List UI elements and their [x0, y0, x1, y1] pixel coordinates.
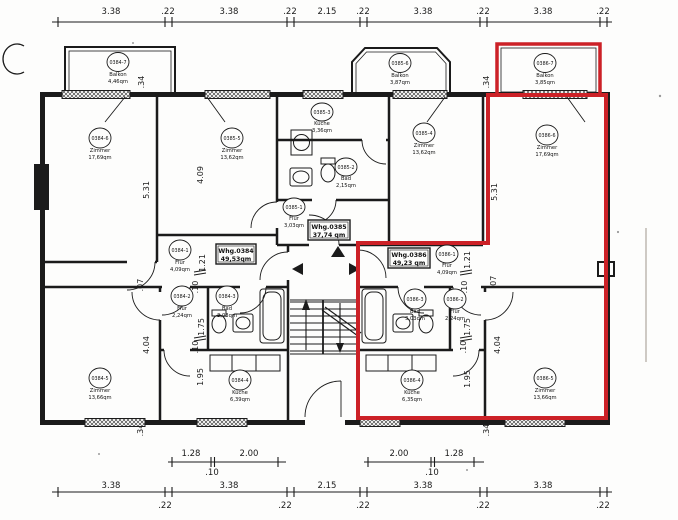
dim-label: .22 — [596, 501, 610, 511]
apartment-area: 49,53qm — [221, 256, 251, 263]
dim-label: 2.15 — [318, 481, 337, 491]
staircase — [290, 299, 361, 354]
room-label-0384-5: 0384-5 Zimmer 13,66qm — [88, 368, 111, 401]
apartment-area: 49,23 qm — [393, 260, 426, 267]
apartment-label-0384: Whg.0384 49,53qm — [216, 244, 256, 264]
room-number: 0386-6 — [539, 133, 556, 139]
room-area: 3,85qm — [535, 80, 555, 86]
dim-label: 3.38 — [534, 481, 553, 491]
room-type: Flur — [442, 263, 453, 269]
room-number: 0385-3 — [314, 110, 331, 116]
dim-label: .22 — [356, 501, 370, 511]
dim-label: 3.38 — [534, 7, 553, 17]
room-type: Zimmer — [90, 148, 111, 154]
room-number: 0386-2 — [447, 297, 464, 303]
room-number: 0385-6 — [392, 61, 409, 67]
room-number: 0384-4 — [232, 378, 249, 384]
dim-label: .22 — [476, 501, 490, 511]
dim-label: .34 — [482, 76, 491, 89]
room-label-0386-5: 0386-5 Zimmer 13,66qm — [533, 368, 556, 401]
dim-label: 2.00 — [390, 449, 409, 459]
room-area: 13,62qm — [220, 155, 243, 161]
dim-label: 3.38 — [102, 481, 121, 491]
dim-label: 3.38 — [414, 7, 433, 17]
dimension-chain-bottom: 3.38 .22 3.38 .22 2.15 .22 3.38 .22 3.38… — [52, 481, 612, 511]
room-area: 17,69qm — [88, 155, 111, 161]
room-area: 3,87qm — [390, 80, 410, 86]
room-number: 0385-4 — [416, 131, 433, 137]
apartment-label-0386: Whg.0386 49,23 qm — [388, 248, 430, 268]
room-area: 2,15qm — [336, 183, 356, 189]
apartment-area: 37,74 qm — [313, 232, 346, 239]
triangle-up-icon — [331, 246, 345, 257]
dim-label: .10 — [425, 468, 439, 478]
room-type: Balkon — [536, 73, 553, 79]
room-area: 6,39qm — [230, 397, 250, 403]
dim-label: .10 — [191, 341, 200, 354]
room-label-0385-1: 0385-1 Flur 3,03qm — [283, 198, 305, 229]
room-label-0385-2: 0385-2 Bad 2,15qm — [335, 158, 357, 189]
room-area: 4,09qm — [437, 270, 457, 276]
apartment-name: Whg.0385 — [311, 224, 346, 231]
room-number: 0386-1 — [439, 252, 456, 258]
room-label-0384-2: 0384-2 Flur 2,24qm — [171, 286, 193, 319]
dim-label: 1.21 — [198, 254, 207, 272]
room-label-0384-7: 0384-7 Balkon 4,46qm — [107, 53, 129, 86]
hall-direction-markers — [292, 246, 360, 275]
room-type: Bad — [222, 306, 232, 312]
room-number: 0384-2 — [174, 294, 191, 300]
room-area: 4,46qm — [108, 79, 128, 85]
room-area: 13,62qm — [412, 150, 435, 156]
room-number: 0384-6 — [92, 136, 109, 142]
dim-label: .10 — [459, 341, 468, 354]
room-type: Zimmer — [414, 143, 435, 149]
apartment-name: Whg.0386 — [391, 252, 426, 259]
room-label-0386-1: 0386-1 Flur 4,09qm — [436, 245, 458, 276]
room-number: 0386-5 — [537, 376, 554, 382]
dim-label: .22 — [283, 7, 297, 17]
dim-label: .22 — [476, 7, 490, 17]
room-type: Balkon — [109, 72, 126, 78]
room-type: Zimmer — [537, 145, 558, 151]
room-number: 0385-2 — [338, 165, 355, 171]
dim-label: 1.28 — [182, 449, 201, 459]
room-type: Flur — [289, 216, 300, 222]
room-label-0384-3: 0384-3 Bad 3,03qm — [216, 286, 238, 319]
room-number: 0385-5 — [224, 136, 241, 142]
room-label-0385-4: 0385-4 Zimmer 13,62qm — [412, 123, 435, 156]
dim-label: 3.38 — [102, 7, 121, 17]
room-number: 0384-1 — [172, 248, 189, 254]
triangle-left-icon — [292, 263, 303, 275]
room-type: Flur — [177, 306, 188, 312]
room-area: 13,66qm — [533, 395, 556, 401]
dim-label: 1.28 — [445, 449, 464, 459]
room-type: Flur — [450, 309, 461, 315]
room-type: Bad — [341, 176, 351, 182]
room-number: 0384-5 — [92, 376, 109, 382]
dim-label: .10 — [205, 468, 219, 478]
room-label-0384-4: 0384-4 Küche 6,39qm — [229, 370, 251, 403]
room-label-0386-6: 0386-6 Zimmer 17,69qm — [535, 125, 558, 158]
room-number: 0384-7 — [110, 60, 127, 66]
room-area: 13,66qm — [88, 395, 111, 401]
dim-label: 3.38 — [220, 7, 239, 17]
room-area: 6,35qm — [402, 397, 422, 403]
dim-label: 4.04 — [142, 336, 151, 354]
room-area: 4,09qm — [170, 267, 190, 273]
room-label-0385-6: 0385-6 Balkon 3,87qm — [389, 54, 411, 87]
dimension-chain-bottom-inner: 1.28 .10 2.00 2.00 .10 1.28 — [168, 449, 484, 478]
room-label-0386-4: 0386-4 Küche 6,35qm — [401, 370, 423, 403]
dim-label: 3.38 — [414, 481, 433, 491]
floor-plan-drawing: 3.38 .22 3.38 .22 2.15 .22 3.38 .22 3.38… — [0, 0, 678, 520]
room-number: 0386-3 — [407, 297, 424, 303]
dim-label: 4.09 — [196, 166, 205, 184]
apartment-label-0385: Whg.0385 37,74 qm — [308, 220, 350, 240]
dim-label: 1.95 — [196, 368, 205, 386]
room-label-0385-5: 0385-5 Zimmer 13,62qm — [220, 128, 243, 161]
outer-walls — [34, 92, 614, 425]
room-label-0386-2: 0386-2 Flur 2,24qm — [444, 289, 466, 322]
dim-label: 4.04 — [493, 336, 502, 354]
dim-label: 3.38 — [220, 481, 239, 491]
room-type: Küche — [314, 121, 330, 127]
room-type: Küche — [404, 390, 420, 396]
room-area: 3,03qm — [217, 313, 237, 319]
room-area: 3,03qm — [284, 223, 304, 229]
dim-label: 2.00 — [240, 449, 259, 459]
dim-label: 1.75 — [197, 318, 206, 336]
dim-label: .22 — [596, 7, 610, 17]
dim-label: .34 — [482, 424, 491, 437]
room-type: Zimmer — [535, 388, 556, 394]
room-area: 3,36qm — [312, 128, 332, 134]
room-label-0385-3: 0385-3 Küche 3,36qm — [311, 103, 333, 134]
dim-label: 1.21 — [463, 251, 472, 269]
room-type: Zimmer — [222, 148, 243, 154]
room-type: Balkon — [391, 73, 408, 79]
dimension-chain-top: 3.38 .22 3.38 .22 2.15 .22 3.38 .22 3.38… — [52, 7, 612, 27]
dim-label: .22 — [278, 501, 292, 511]
room-type: Flur — [175, 260, 186, 266]
room-label-0384-1: 0384-1 Flur 4,09qm — [169, 240, 191, 273]
room-number: 0386-4 — [404, 378, 421, 384]
room-number: 0384-3 — [219, 294, 236, 300]
room-type: Zimmer — [90, 388, 111, 394]
floor-plan-page: 3.38 .22 3.38 .22 2.15 .22 3.38 .22 3.38… — [0, 0, 678, 520]
dim-label: 5.31 — [490, 183, 499, 201]
dim-label: 2.15 — [318, 7, 337, 17]
room-label-0386-7: 0386-7 Balkon 3,85qm — [534, 54, 556, 87]
room-area: 2,24qm — [445, 316, 465, 322]
dim-label: .22 — [356, 7, 370, 17]
interior-walls — [40, 92, 610, 420]
room-number: 0385-1 — [286, 205, 303, 211]
wall-pier-left — [34, 164, 49, 210]
room-area: 17,69qm — [535, 152, 558, 158]
dim-label: .34 — [137, 76, 146, 89]
room-label-0386-3: 0386-3 Bad 3,03qm — [404, 289, 426, 322]
room-type: Küche — [232, 390, 248, 396]
dim-label: 1.95 — [463, 370, 472, 388]
room-number: 0386-7 — [537, 61, 554, 67]
dim-label: .22 — [161, 7, 175, 17]
dim-label: 5.31 — [142, 181, 151, 199]
dim-label: .22 — [158, 501, 172, 511]
room-area: 3,03qm — [405, 316, 425, 322]
room-type: Bad — [410, 309, 420, 315]
apartment-name: Whg.0384 — [218, 248, 254, 255]
room-label-0384-6: 0384-6 Zimmer 17,69qm — [88, 128, 111, 161]
room-area: 2,24qm — [172, 313, 192, 319]
